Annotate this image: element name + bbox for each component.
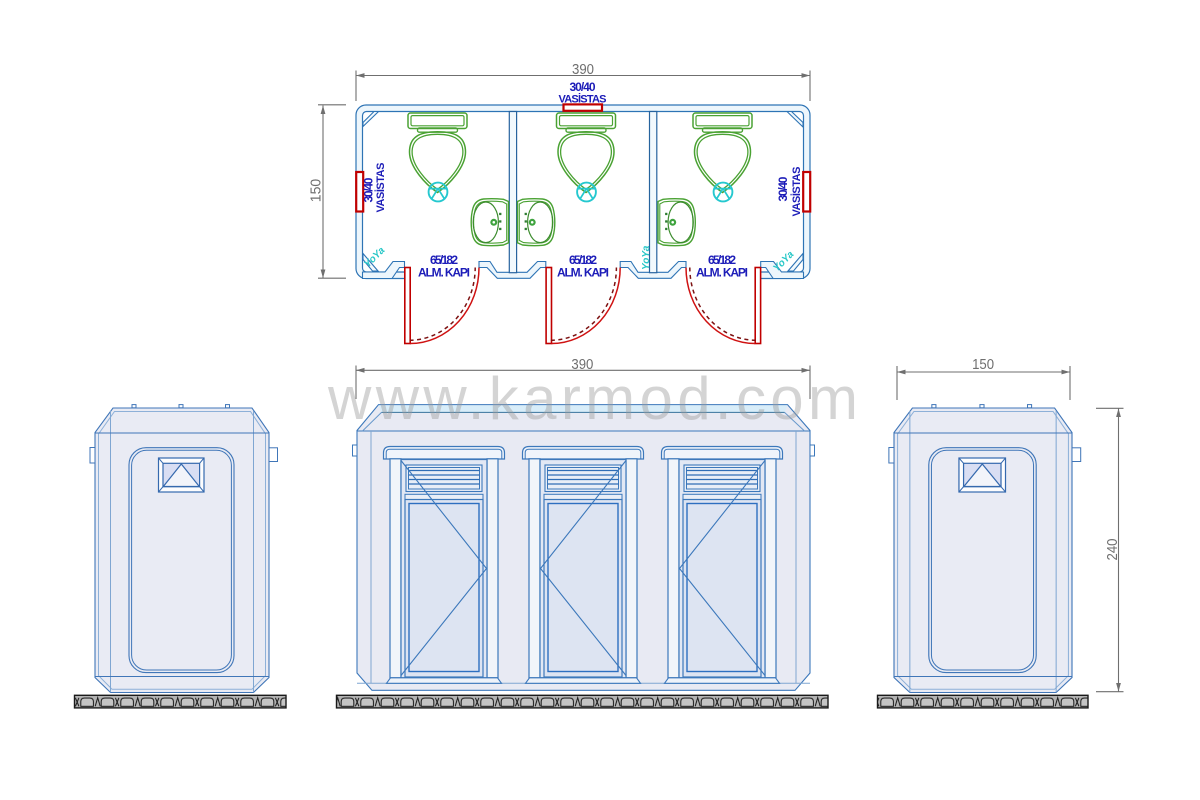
svg-text:VASİSTAS: VASİSTAS — [790, 167, 803, 217]
svg-text:VASİSTAS: VASİSTAS — [559, 93, 607, 106]
svg-text:YoYa: YoYa — [641, 245, 652, 270]
svg-text:30/40: 30/40 — [776, 176, 790, 201]
svg-text:150: 150 — [309, 179, 325, 203]
svg-text:30/40: 30/40 — [570, 80, 596, 94]
svg-text:150: 150 — [972, 357, 994, 373]
svg-text:ALM. KAPI: ALM. KAPI — [696, 266, 748, 280]
svg-text:240: 240 — [1105, 539, 1121, 561]
svg-text:ALM. KAPI: ALM. KAPI — [418, 266, 470, 280]
svg-text:390: 390 — [572, 62, 594, 78]
svg-text:30/40: 30/40 — [361, 177, 375, 202]
svg-text:ALM. KAPI: ALM. KAPI — [557, 266, 609, 280]
svg-text:VASİSTAS: VASİSTAS — [374, 163, 387, 213]
svg-text:www.karmod.com: www.karmod.com — [327, 365, 858, 432]
